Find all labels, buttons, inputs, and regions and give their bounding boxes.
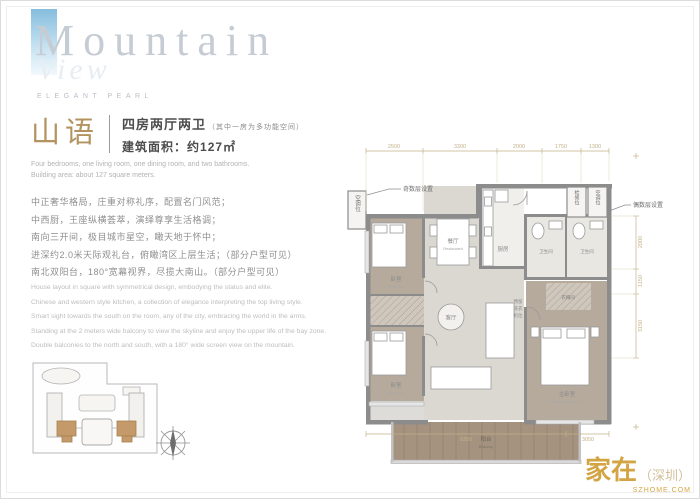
unit-info-english: Four bedrooms, one living room, one dini… (31, 159, 249, 181)
brand-subtitle: ELEGANT PEARL (37, 93, 153, 100)
unit-type: 四房两厅两卫（其中一房为多功能空间） (122, 114, 304, 133)
label-laundry-3: 机位 (514, 312, 523, 319)
watermark: 家在 （深圳） SZHOME.COM (585, 450, 691, 494)
coffee-table (431, 367, 491, 389)
label-master-en: Master bedroom (552, 399, 582, 404)
callout-left-text: 奇数层设置 (403, 185, 433, 193)
desc-en-line: Chinese and western style kitchen, a col… (31, 296, 326, 311)
brand-title: Mountain (35, 15, 278, 66)
sofa (486, 303, 514, 358)
dim-right-2: 1150 (638, 275, 644, 287)
ac-box-left-label: 空调位 (354, 194, 361, 212)
callout-leader-right (609, 205, 631, 211)
dim-top-3: 2000 (513, 144, 525, 150)
sink-bath-2 (590, 221, 603, 229)
unit-info: 四房两厅两卫（其中一房为多功能空间） 建筑面积：约127㎡ (122, 113, 304, 155)
label-dining-en: Restaurant (443, 246, 463, 251)
desc-en-line: Standing at the 2 meters wide balcony to… (31, 325, 326, 340)
floor-plan: 空调位 检修位 空调位 奇数层设置 偶数层设置 卧室 Bedroom 卧室 Be… (331, 131, 699, 491)
label-bedroom-1-en: Bedroom (388, 284, 405, 289)
label-laundry-2: 洗衣 (514, 305, 523, 312)
label-master-cn: 主卧室 (559, 390, 576, 398)
desc-cn-line: 进深约2.0米天际观礼台，俯瞰湾区上层生活；（部分户型可见） (31, 247, 297, 265)
site-highlight-stem-right (122, 436, 132, 442)
label-bath-1-cn: 卫生间 (539, 248, 553, 255)
label-dining-cn: 餐厅 (447, 237, 459, 245)
unit-area: 建筑面积：约127㎡ (122, 138, 304, 155)
site-court-block (82, 419, 112, 445)
label-bedroom-2-en: Bedroom (388, 390, 405, 395)
site-highlight-unit-left (57, 421, 76, 436)
label-bedroom-1-cn: 卧室 (390, 275, 402, 283)
site-highlight-stem-left (62, 436, 72, 442)
callout-right-text: 偶数层设置 (633, 201, 663, 209)
label-bath-2-cn: 卫生间 (580, 248, 594, 255)
desc-en-line: Double balconies to the north and south,… (31, 339, 326, 354)
service-box-right-1-label: 检修位 (574, 189, 580, 205)
dim-bottom-1: 9350 (460, 437, 472, 443)
dim-right-3: 3150 (638, 320, 644, 332)
watermark-sub: SZHOME.COM (585, 487, 691, 494)
flyer-page: { "colors":{"accent_gold":"#b3935f","dim… (0, 0, 700, 499)
desc-en-line: Smart sight towards the south on the roo… (31, 310, 326, 325)
unit-type-text: 四房两厅两卫 (122, 117, 206, 132)
desc-cn-line: 中西厨，王座纵横荟萃，演绎尊享生活格调； (31, 212, 297, 230)
desc-cn-line: 南北双阳台，180°宽幕视界，尽揽大南山。（部分户型可见） (31, 264, 297, 282)
site-key-plan (27, 357, 167, 461)
toilet-bath-2 (573, 223, 585, 239)
description-english: House layout in square with symmetrical … (31, 281, 326, 354)
callout-leader-left (367, 189, 401, 195)
desc-cn-line: 南向三开间，极目城市星空，瞰天地于怀中； (31, 229, 297, 247)
site-highlight-unit-right (117, 421, 136, 436)
dim-bottom-2: 3050 (582, 437, 594, 443)
headline-block: 山语 四房两厅两卫（其中一房为多功能空间） 建筑面积：约127㎡ (31, 113, 304, 155)
label-balcony-en: Balcony (479, 444, 493, 449)
toilet-bath-1 (532, 223, 544, 239)
dim-top-4: 1750 (555, 144, 567, 150)
desc-cn-line: 中正奢华格局，庄重对称礼序，配置名门风范； (31, 194, 297, 212)
label-living-cn: 客厅 (445, 314, 457, 322)
unit-type-note: （其中一房为多功能空间） (208, 124, 304, 131)
label-balcony-cn: 阳台 (480, 435, 492, 443)
site-garden-oval (42, 368, 80, 384)
dim-top-2: 3300 (454, 144, 466, 150)
watermark-main: 家在 (585, 450, 637, 487)
unit-type-english: Four bedrooms, one living room, one dini… (31, 159, 249, 170)
watermark-paren: （深圳） (639, 465, 691, 487)
description-chinese: 中正奢华格局，庄重对称礼序，配置名门风范； 中西厨，王座纵横荟萃，演绎尊享生活格… (31, 194, 297, 282)
compass-rose (153, 423, 193, 463)
site-center-block (79, 395, 115, 411)
desc-en-line: House layout in square with symmetrical … (31, 281, 326, 296)
dim-top-5: 1300 (589, 144, 601, 150)
unit-area-english: Building area: about 127 square meters. (31, 170, 249, 181)
label-laundry-1: 预留 (514, 298, 523, 305)
label-closet-cn: 衣帽间 (561, 294, 575, 301)
headline-divider (109, 115, 110, 153)
label-kitchen-cn: 厨房 (497, 245, 509, 253)
dim-right-1: 2000 (638, 236, 644, 248)
compass-needle (170, 429, 176, 457)
label-bedroom-2-cn: 卧室 (390, 381, 402, 389)
sink-bath-1 (549, 221, 562, 229)
unit-name: 山语 (31, 113, 99, 153)
ac-box-right-label: 空调位 (595, 189, 601, 205)
kitchen-sink (495, 190, 508, 202)
dim-top-1: 2500 (388, 144, 400, 150)
